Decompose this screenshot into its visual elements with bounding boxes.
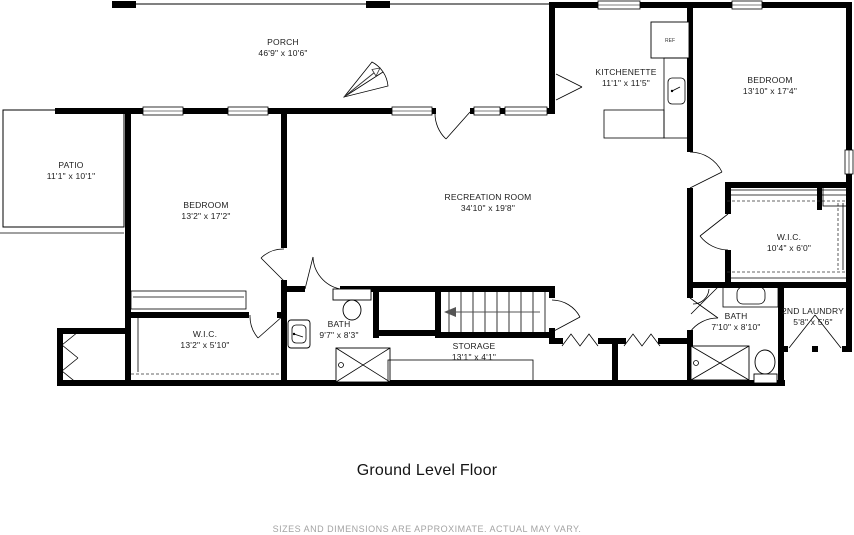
refrigerator-label: REF <box>665 38 675 44</box>
label-storage: STORAGE 13'1" x 4'1" <box>452 341 496 363</box>
label-wic-right: W.I.C. 10'4" x 6'0" <box>767 232 811 254</box>
corner-shower <box>691 285 720 314</box>
toilet <box>343 300 361 320</box>
label-bath-left: BATH 9'7" x 8'3" <box>319 319 358 341</box>
stairs-direction-arrow <box>444 307 456 317</box>
dresser <box>131 291 246 309</box>
kitchen-sink <box>668 78 685 104</box>
floor-title: Ground Level Floor <box>0 462 854 480</box>
porch-outline <box>112 1 552 8</box>
label-bath-right: BATH 7'10" x 8'10" <box>711 311 760 333</box>
label-patio: PATIO 11'1" x 10'1" <box>47 160 96 182</box>
floor-plan: REF <box>0 0 854 440</box>
label-recreation-room: RECREATION ROOM 34'10" x 19'8" <box>445 192 532 214</box>
kitchen-counter-l <box>604 110 664 138</box>
storage-shelf <box>388 360 533 382</box>
label-bedroom-right: BEDROOM 13'10" x 17'4" <box>743 75 797 97</box>
compass-icon <box>344 62 388 97</box>
floor-plan-drawing: REF <box>0 0 854 440</box>
vanity-sink <box>737 287 765 304</box>
laundry-sink <box>288 320 310 348</box>
label-bedroom-left: BEDROOM 13'2" x 17'2" <box>181 200 230 222</box>
toilet-tank <box>754 374 777 383</box>
toilet-tank <box>333 289 371 300</box>
label-porch: PORCH 46'9" x 10'6" <box>258 37 307 59</box>
stairs <box>444 292 545 332</box>
label-kitchenette: KITCHENETTE 11'1" x 11'5" <box>595 67 656 89</box>
disclaimer-text: SIZES AND DIMENSIONS ARE APPROXIMATE. AC… <box>0 524 854 534</box>
toilet <box>755 350 775 374</box>
label-2nd-laundry: 2ND LAUNDRY 5'8" x 5'6" <box>782 306 844 328</box>
label-wic-left: W.I.C. 13'2" x 5'10" <box>180 329 229 351</box>
